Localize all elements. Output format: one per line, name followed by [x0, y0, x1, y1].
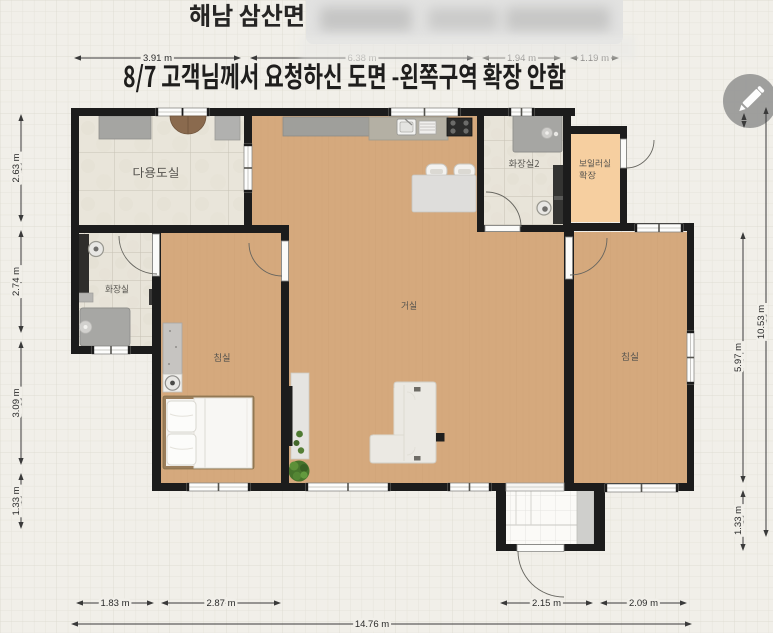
- svg-text:3.09 m: 3.09 m: [11, 388, 22, 417]
- svg-text:2.74 m: 2.74 m: [11, 267, 22, 296]
- svg-text:10.53 m: 10.53 m: [756, 305, 767, 339]
- svg-text:1.83 m: 1.83 m: [100, 598, 129, 609]
- svg-text:14.76 m: 14.76 m: [355, 619, 389, 630]
- svg-text:2.87 m: 2.87 m: [206, 598, 235, 609]
- svg-text:1.33 m: 1.33 m: [733, 506, 744, 535]
- svg-text:2.15 m: 2.15 m: [532, 598, 561, 609]
- svg-text:2.09 m: 2.09 m: [629, 598, 658, 609]
- svg-text:1.33 m: 1.33 m: [11, 486, 22, 515]
- svg-text:2.63 m: 2.63 m: [11, 153, 22, 182]
- svg-text:5.97 m: 5.97 m: [733, 343, 744, 372]
- svg-text:3.91 m: 3.91 m: [143, 53, 172, 64]
